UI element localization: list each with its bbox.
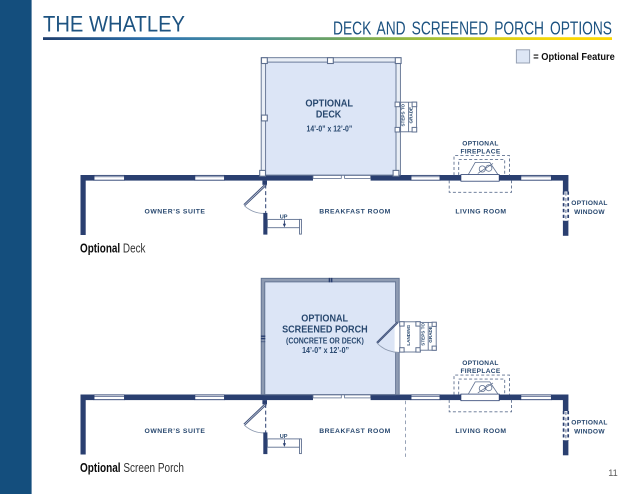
svg-text:OPTIONAL: OPTIONAL [301,313,348,324]
svg-text:WINDOW: WINDOW [574,428,605,435]
svg-text:DECK: DECK [316,109,342,120]
svg-text:OPTIONAL: OPTIONAL [571,420,607,427]
svg-text:Optional Screen Porch: Optional Screen Porch [80,460,184,475]
svg-text:BREAKFAST ROOM: BREAKFAST ROOM [319,209,391,216]
svg-text:Optional Deck: Optional Deck [80,241,146,256]
svg-text:OPTIONAL: OPTIONAL [305,99,353,110]
svg-text:BREAKFAST ROOM: BREAKFAST ROOM [319,428,391,435]
svg-text:UP: UP [280,214,288,220]
svg-text:STEPS TO: STEPS TO [420,323,425,346]
svg-text:THE WHATLEY: THE WHATLEY [43,12,185,37]
svg-text:(CONCRETE OR DECK): (CONCRETE OR DECK) [286,336,364,345]
svg-text:OWNER’S SUITE: OWNER’S SUITE [145,428,206,435]
svg-text:FIREPLACE: FIREPLACE [460,148,500,155]
svg-text:DECK AND SCREENED PORCH OPTION: DECK AND SCREENED PORCH OPTIONS [333,17,612,38]
svg-text:= Optional Feature: = Optional Feature [533,52,615,63]
svg-text:WINDOW: WINDOW [574,209,605,216]
svg-text:OPTIONAL: OPTIONAL [462,140,498,147]
svg-text:LANDING: LANDING [406,324,411,345]
svg-text:LIVING ROOM: LIVING ROOM [455,209,506,216]
svg-text:SCREENED PORCH: SCREENED PORCH [282,324,368,335]
svg-text:FIREPLACE: FIREPLACE [460,368,500,375]
svg-text:GRADE: GRADE [408,107,413,124]
svg-text:OWNER’S SUITE: OWNER’S SUITE [145,209,206,216]
svg-text:LIVING ROOM: LIVING ROOM [455,428,506,435]
svg-text:14’-0” x 12’-0”: 14’-0” x 12’-0” [302,346,349,355]
svg-text:11: 11 [608,468,618,478]
svg-text:UP: UP [280,434,288,440]
svg-text:STEPS TO: STEPS TO [401,103,406,126]
svg-text:OPTIONAL: OPTIONAL [571,200,607,207]
svg-text:GRADE: GRADE [428,326,433,343]
svg-text:OPTIONAL: OPTIONAL [462,360,498,367]
svg-text:14’-0” x 12’-0”: 14’-0” x 12’-0” [307,125,353,134]
